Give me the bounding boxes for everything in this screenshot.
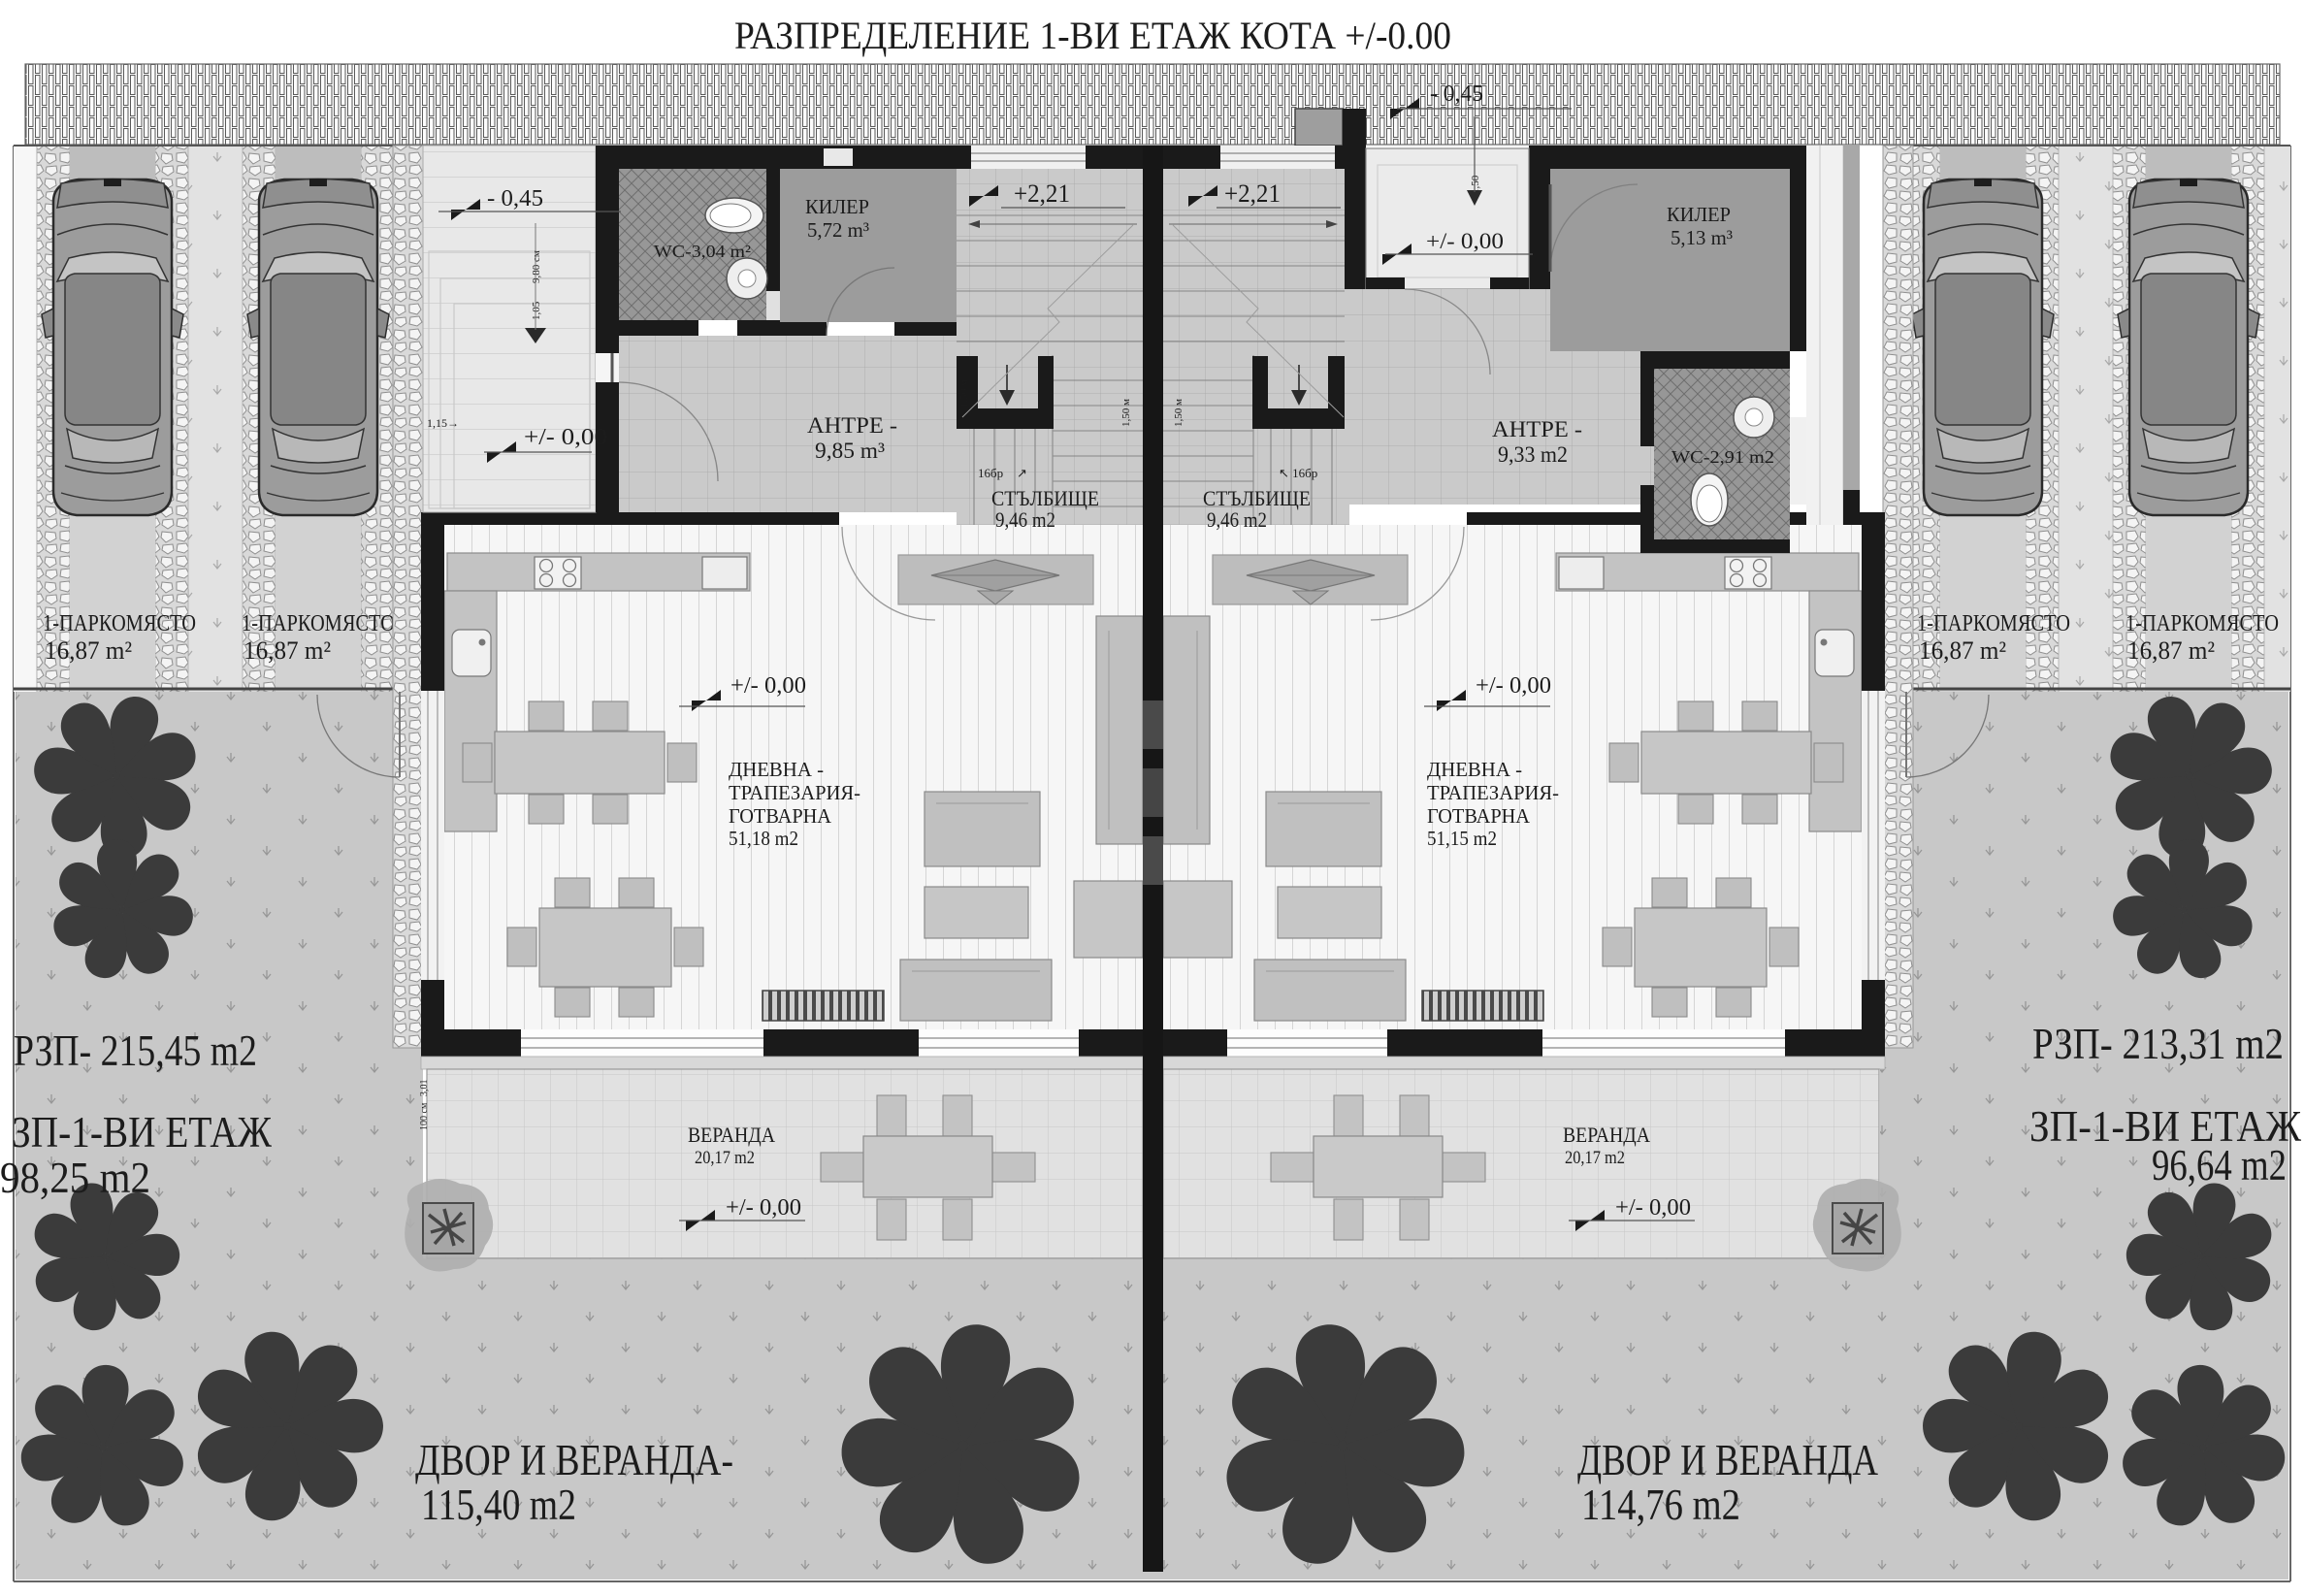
- svg-text:ТРАПЕЗАРИЯ-: ТРАПЕЗАРИЯ-: [729, 781, 860, 804]
- svg-text:9,33 m2: 9,33 m2: [1498, 442, 1568, 467]
- svg-text:+/- 0,00: +/- 0,00: [730, 673, 806, 699]
- svg-text:51,18 m2: 51,18 m2: [729, 827, 798, 850]
- svg-text:КИЛЕР: КИЛЕР: [1667, 203, 1731, 226]
- svg-text:WC-2,91 m2: WC-2,91 m2: [1671, 447, 1774, 467]
- svg-text:20,17 m2: 20,17 m2: [1565, 1148, 1625, 1168]
- svg-text:ВЕРАНДА: ВЕРАНДА: [1563, 1123, 1650, 1147]
- svg-text:1-ПАРКОМЯСТО: 1-ПАРКОМЯСТО: [242, 611, 395, 636]
- svg-text:96,64 m2: 96,64 m2: [2152, 1141, 2287, 1189]
- svg-text:ДВОР И ВЕРАНДА: ДВОР И ВЕРАНДА: [1577, 1436, 1878, 1484]
- svg-text:1,50 м: 1,50 м: [958, 379, 970, 407]
- svg-text:1,50 м: 1,50 м: [1173, 399, 1184, 427]
- svg-text:114,76 m2: 114,76 m2: [1581, 1481, 1740, 1529]
- svg-text:- 0,45: - 0,45: [487, 186, 543, 212]
- svg-text:5,72 m³: 5,72 m³: [807, 218, 869, 242]
- svg-text:ВЕРАНДА: ВЕРАНДА: [688, 1123, 775, 1147]
- svg-text:1,15→: 1,15→: [427, 416, 459, 430]
- svg-text:+/- 0,00: +/- 0,00: [1615, 1195, 1691, 1221]
- svg-text:ГОТВАРНА: ГОТВАРНА: [729, 804, 832, 828]
- svg-text:9,85 m³: 9,85 m³: [815, 439, 885, 463]
- svg-text:9,46 m2: 9,46 m2: [1207, 507, 1267, 532]
- svg-text:16,87 m²: 16,87 m²: [1919, 636, 2006, 665]
- svg-text:+/- 0,00: +/- 0,00: [1426, 229, 1504, 253]
- svg-text:5,13 m³: 5,13 m³: [1671, 226, 1733, 249]
- svg-text:+2,21: +2,21: [1014, 179, 1070, 208]
- svg-text:РЗП- 213,31 m2: РЗП- 213,31 m2: [2032, 1020, 2284, 1068]
- svg-text:51,15 m2: 51,15 m2: [1427, 827, 1497, 850]
- svg-text:1,05: 1,05: [531, 301, 542, 320]
- svg-text:ТРАПЕЗАРИЯ-: ТРАПЕЗАРИЯ-: [1427, 781, 1559, 804]
- svg-text:16бр: 16бр: [978, 466, 1003, 480]
- svg-text:+/- 0,00: +/- 0,00: [524, 425, 607, 450]
- svg-text:+/- 0,00: +/- 0,00: [1476, 673, 1551, 699]
- svg-text:ГОТВАРНА: ГОТВАРНА: [1427, 804, 1531, 828]
- svg-text:ДНЕВНА -: ДНЕВНА -: [1427, 758, 1522, 781]
- svg-text:КИЛЕР: КИЛЕР: [805, 195, 869, 218]
- svg-text:↗: ↗: [1017, 466, 1027, 480]
- svg-text:1-ПАРКОМЯСТО: 1-ПАРКОМЯСТО: [43, 611, 196, 636]
- svg-text:РАЗПРЕДЕЛЕНИЕ 1-ВИ ЕТАЖ КОТА: РАЗПРЕДЕЛЕНИЕ 1-ВИ ЕТАЖ КОТА +/-0.00: [734, 14, 1451, 57]
- svg-text:3,01: 3,01: [419, 1080, 430, 1097]
- svg-text:9,46 m2: 9,46 m2: [995, 507, 1055, 532]
- svg-text:АНТРЕ -: АНТРЕ -: [1492, 417, 1582, 441]
- svg-text:РЗП- 215,45 m2: РЗП- 215,45 m2: [14, 1026, 257, 1075]
- svg-text:ДНЕВНА -: ДНЕВНА -: [729, 758, 824, 781]
- svg-text:115,40 m2: 115,40 m2: [421, 1481, 576, 1529]
- svg-text:- 0,45: - 0,45: [1430, 81, 1483, 107]
- svg-text:↖ 16бр: ↖ 16бр: [1279, 466, 1317, 480]
- svg-text:1-ПАРКОМЯСТО: 1-ПАРКОМЯСТО: [1917, 611, 2070, 636]
- svg-text:100 см: 100 см: [419, 1102, 430, 1130]
- svg-text:16,87 m²: 16,87 m²: [2127, 636, 2215, 665]
- svg-text:1-ПАРКОМЯСТО: 1-ПАРКОМЯСТО: [2126, 611, 2279, 636]
- svg-text:ЗП-1-ВИ ЕТАЖ: ЗП-1-ВИ ЕТАЖ: [12, 1108, 273, 1156]
- svg-text:WC-3,04 m²: WC-3,04 m²: [654, 242, 751, 261]
- svg-text:9,80 см: 9,80 см: [531, 250, 542, 283]
- svg-text:98,25 m2: 98,25 m2: [0, 1154, 150, 1202]
- svg-text:16,87 m²: 16,87 m²: [243, 636, 331, 665]
- svg-text:16,87 m²: 16,87 m²: [45, 636, 132, 665]
- svg-text:+/- 0,00: +/- 0,00: [726, 1195, 801, 1221]
- svg-text:1,50 м: 1,50 м: [1120, 399, 1132, 427]
- svg-text:ДВОР И ВЕРАНДА-: ДВОР И ВЕРАНДА-: [415, 1436, 733, 1484]
- svg-text:+2,21: +2,21: [1224, 179, 1281, 208]
- svg-text:АНТРЕ -: АНТРЕ -: [807, 413, 897, 438]
- svg-text:20,17 m2: 20,17 m2: [695, 1148, 755, 1168]
